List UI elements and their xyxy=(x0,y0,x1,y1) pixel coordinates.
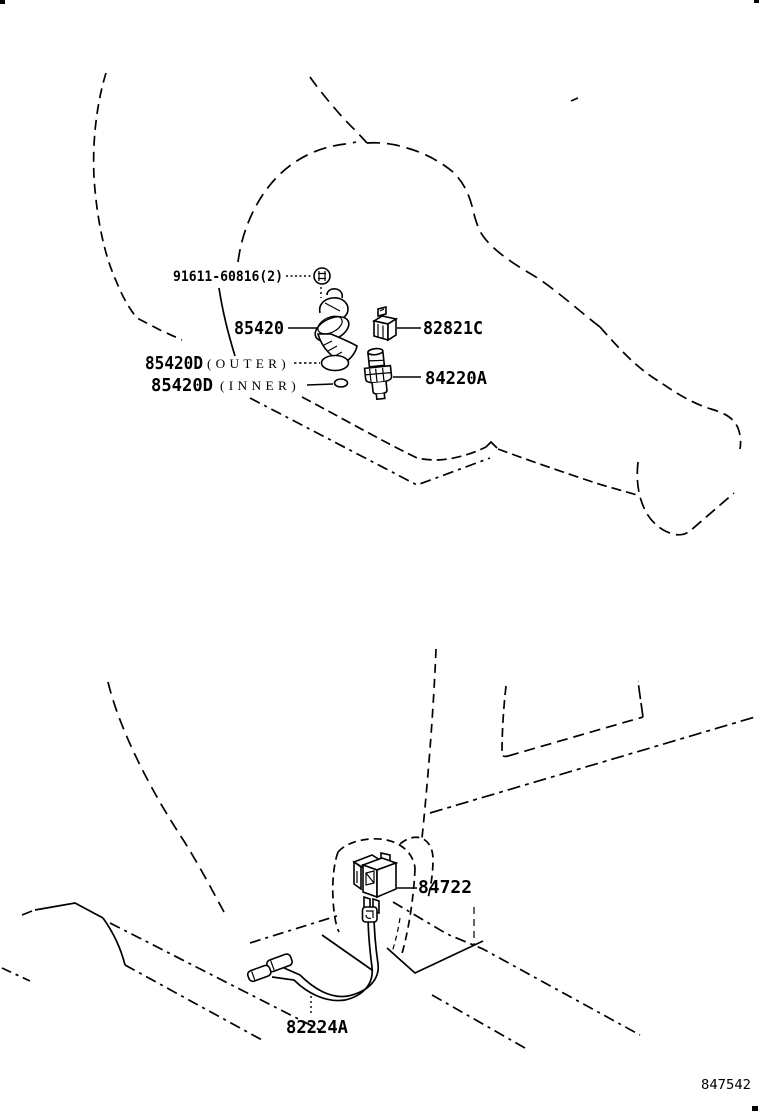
bolt-head-circle xyxy=(314,268,330,284)
console-left-edge xyxy=(333,852,339,932)
lower-view: 84722 82224A xyxy=(2,649,755,1048)
console-right-inner xyxy=(392,918,400,952)
window-left-pillar xyxy=(502,686,508,756)
body-outline-left xyxy=(94,73,182,340)
wheel-housing-curve xyxy=(637,462,734,535)
label-gasket-outer-qualifier: (OUTER) xyxy=(207,357,290,371)
switch-84722-drawing xyxy=(354,853,396,913)
sill-line-corner xyxy=(2,968,30,981)
body-crease-dashed xyxy=(302,397,486,460)
corner-mark-top-left xyxy=(0,0,5,4)
sill-peak xyxy=(35,903,103,918)
switch-84722-body-front xyxy=(363,865,377,897)
label-switch-door: 84722 xyxy=(418,877,472,898)
label-gasket-outer: 85420D xyxy=(145,353,203,374)
label-wire: 82224A xyxy=(286,1017,348,1038)
cover-front-face xyxy=(374,321,388,340)
corner-mark-bottom-right xyxy=(752,1106,758,1111)
label-switch-main: 85420 xyxy=(234,318,284,339)
window-bottom-edge xyxy=(508,717,643,756)
console-right-edge xyxy=(401,868,415,957)
parts-diagram-page: 91611-60816(2) 85420 82821C 85420D (OUTE… xyxy=(0,0,760,1112)
sill-peak-tick xyxy=(22,911,32,915)
gasket-inner-drawing xyxy=(335,379,348,387)
label-cover: 82821C xyxy=(423,318,483,339)
body-crease-bump xyxy=(486,442,497,448)
switch-84220a-plug xyxy=(372,382,387,395)
wire-82224a-drawing xyxy=(247,913,379,1001)
small-speck xyxy=(571,98,578,101)
switch-85420-drawing xyxy=(311,289,357,363)
switch-85420-knob-top xyxy=(327,289,342,298)
corner-mark-top-right xyxy=(754,0,759,3)
floor-opening-right xyxy=(387,941,483,973)
pillar-center-line xyxy=(422,649,436,838)
wire-terminal-2 xyxy=(247,964,272,982)
window-right-pillar xyxy=(638,681,643,717)
floor-line-lower xyxy=(432,995,525,1048)
diagram-canvas: 91611-60816(2) 85420 82821C 85420D (OUTE… xyxy=(0,0,760,1112)
sill-line-lower xyxy=(125,965,262,1040)
floor-centerline-right xyxy=(393,902,640,1035)
bolt-drawing xyxy=(286,268,330,298)
floor-opening-left xyxy=(322,935,372,970)
switch-84220a-tab xyxy=(376,393,384,399)
clip-body xyxy=(363,907,378,922)
terminal-2-body xyxy=(247,964,272,982)
gasket-outer-drawing xyxy=(322,356,349,371)
floor-edge-line xyxy=(250,398,490,485)
switch-84722-body-right xyxy=(377,863,396,897)
body-outline-right xyxy=(600,327,741,449)
leader-gasket-inner xyxy=(307,384,333,385)
switch-84220a-drawing xyxy=(363,347,394,400)
label-gasket-inner-qualifier: (INNER) xyxy=(220,379,300,393)
cover-82821c-drawing xyxy=(374,307,396,340)
top-slant-line xyxy=(310,77,367,143)
wheel-arch-dome xyxy=(238,142,600,327)
cover-top-tab xyxy=(378,307,386,316)
door-edge-line xyxy=(108,682,224,912)
upper-view: 91611-60816(2) 85420 82821C 85420D (OUTE… xyxy=(94,73,741,535)
label-switch-sub: 84220A xyxy=(425,368,487,389)
label-bolt: 91611-60816(2) xyxy=(173,269,283,285)
figure-number: 847542 xyxy=(701,1078,751,1093)
clip-drawing xyxy=(363,907,378,922)
rocker-line xyxy=(498,449,637,495)
label-gasket-inner: 85420D xyxy=(151,375,213,396)
body-crease-solid xyxy=(219,288,235,356)
